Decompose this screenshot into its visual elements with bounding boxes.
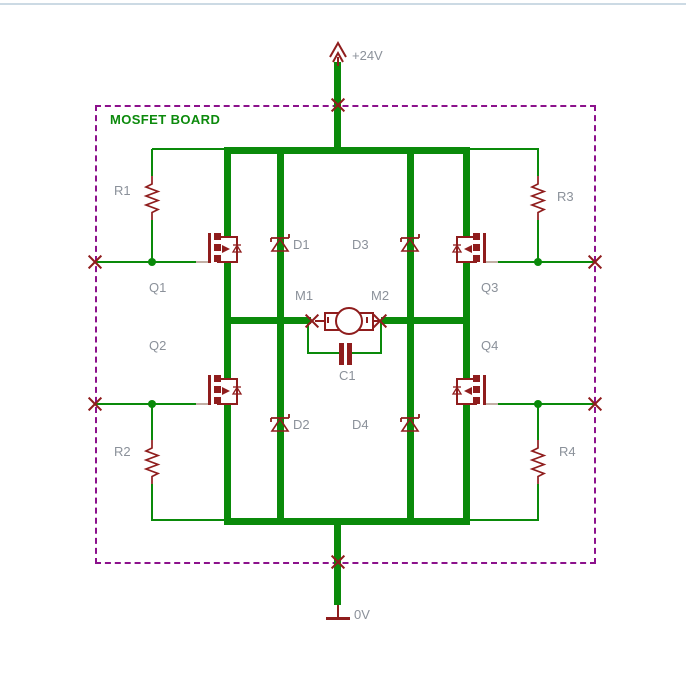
wire-r3-rail-link [466,148,539,150]
resistor-r1-symbol[interactable] [143,176,161,220]
gnd-symbol-bar [326,617,350,620]
gate-pin-stub [196,403,208,405]
terminal-x-left-bottom [87,396,103,412]
junction-dot-q2-gate [148,400,156,408]
net-label-gnd: 0V [354,607,370,622]
motor-pin-tick-right [366,317,368,323]
junction-dot-q4-gate [534,400,542,408]
wire-r1-rail-link [152,148,228,150]
mosfet-q3-symbol[interactable] [450,228,498,266]
gate-bar [208,375,211,405]
board-title: MOSFET BOARD [110,112,220,127]
ref-label-d3: D3 [352,237,369,252]
gate-bar [483,375,486,405]
channel-bar [214,244,221,251]
substrate-arrow-icon [222,387,230,395]
ref-label-r2: R2 [114,444,131,459]
schematic-canvas: MOSFET BOARD [0,0,686,686]
wire-bus-d-left [277,147,284,525]
channel-bar [473,255,480,262]
diode-d4-symbol[interactable] [398,414,422,436]
wire-bottom-rail [224,518,470,525]
resistor-r2-symbol[interactable] [143,440,161,484]
vcc-arrow-icon [328,38,348,66]
wire-mid-rail-right [381,317,470,324]
wire-gate-q1 [95,261,196,263]
wire-bus-q-right [463,147,470,525]
ref-label-q4: Q4 [481,338,498,353]
channel-bar [214,255,221,262]
resistor-r4-symbol[interactable] [529,440,547,484]
terminal-x-gnd [330,554,346,570]
wire-c1-right-horz [352,352,382,354]
gate-pin-stub [486,261,498,263]
body-diode-icon [231,384,243,396]
ref-label-q2: Q2 [149,338,166,353]
wire-r4-rail-link [466,519,539,521]
ref-label-d2: D2 [293,417,310,432]
terminal-x-right-top [587,254,603,270]
channel-bar [473,386,480,393]
body-diode-icon [451,384,463,396]
capacitor-c1-plate-right[interactable] [347,343,352,365]
body-diode-icon [451,242,463,254]
ref-label-c1: C1 [339,368,356,383]
wire-top-rail [224,147,470,154]
ref-label-d1: D1 [293,237,310,252]
ref-label-d4: D4 [352,417,369,432]
channel-bar [473,244,480,251]
ref-label-q3: Q3 [481,280,498,295]
substrate-arrow-icon [464,387,472,395]
terminal-x-vcc [330,97,346,113]
terminal-x-m1 [304,313,320,329]
channel-bar [214,233,221,240]
channel-bar [214,375,221,382]
gate-bar [483,233,486,263]
terminal-x-right-bottom [587,396,603,412]
channel-bar [473,375,480,382]
motor-pin-tick-left [327,317,329,323]
ref-label-r3: R3 [557,189,574,204]
substrate-arrow-icon [464,245,472,253]
wire-bus-d-right [407,147,414,525]
gate-bar [208,233,211,263]
window-edge-line [0,3,686,5]
substrate-arrow-icon [222,245,230,253]
wire-gate-q4 [498,403,595,405]
channel-bar [473,233,480,240]
capacitor-c1-plate-left[interactable] [339,343,344,365]
body-diode-icon [231,242,243,254]
diode-d2-symbol[interactable] [268,414,292,436]
ref-label-r4: R4 [559,444,576,459]
net-label-vcc: +24V [352,48,383,63]
mosfet-q1-symbol[interactable] [196,228,244,266]
ref-label-q1: Q1 [149,280,166,295]
channel-bar [214,397,221,404]
channel-bar [473,397,480,404]
junction-dot-q3-gate [534,258,542,266]
mosfet-q4-symbol[interactable] [450,370,498,408]
diode-d3-symbol[interactable] [398,234,422,256]
wire-r2-rail-link [152,519,228,521]
gate-pin-stub [196,261,208,263]
resistor-r3-symbol[interactable] [529,176,547,220]
gate-pin-stub [486,403,498,405]
wire-mid-rail-left [224,317,311,324]
terminal-x-left-top [87,254,103,270]
wire-gate-q2 [95,403,196,405]
junction-dot-q1-gate [148,258,156,266]
diode-d1-symbol[interactable] [268,234,292,256]
motor-rotor-icon [335,307,363,335]
wire-gate-q3 [498,261,595,263]
wire-bus-q-left [224,147,231,525]
ref-label-m1: M1 [295,288,313,303]
mosfet-q2-symbol[interactable] [196,370,244,408]
ref-label-r1: R1 [114,183,131,198]
terminal-x-m2 [372,313,388,329]
ref-label-m2: M2 [371,288,389,303]
channel-bar [214,386,221,393]
wire-c1-left-horz [307,352,339,354]
